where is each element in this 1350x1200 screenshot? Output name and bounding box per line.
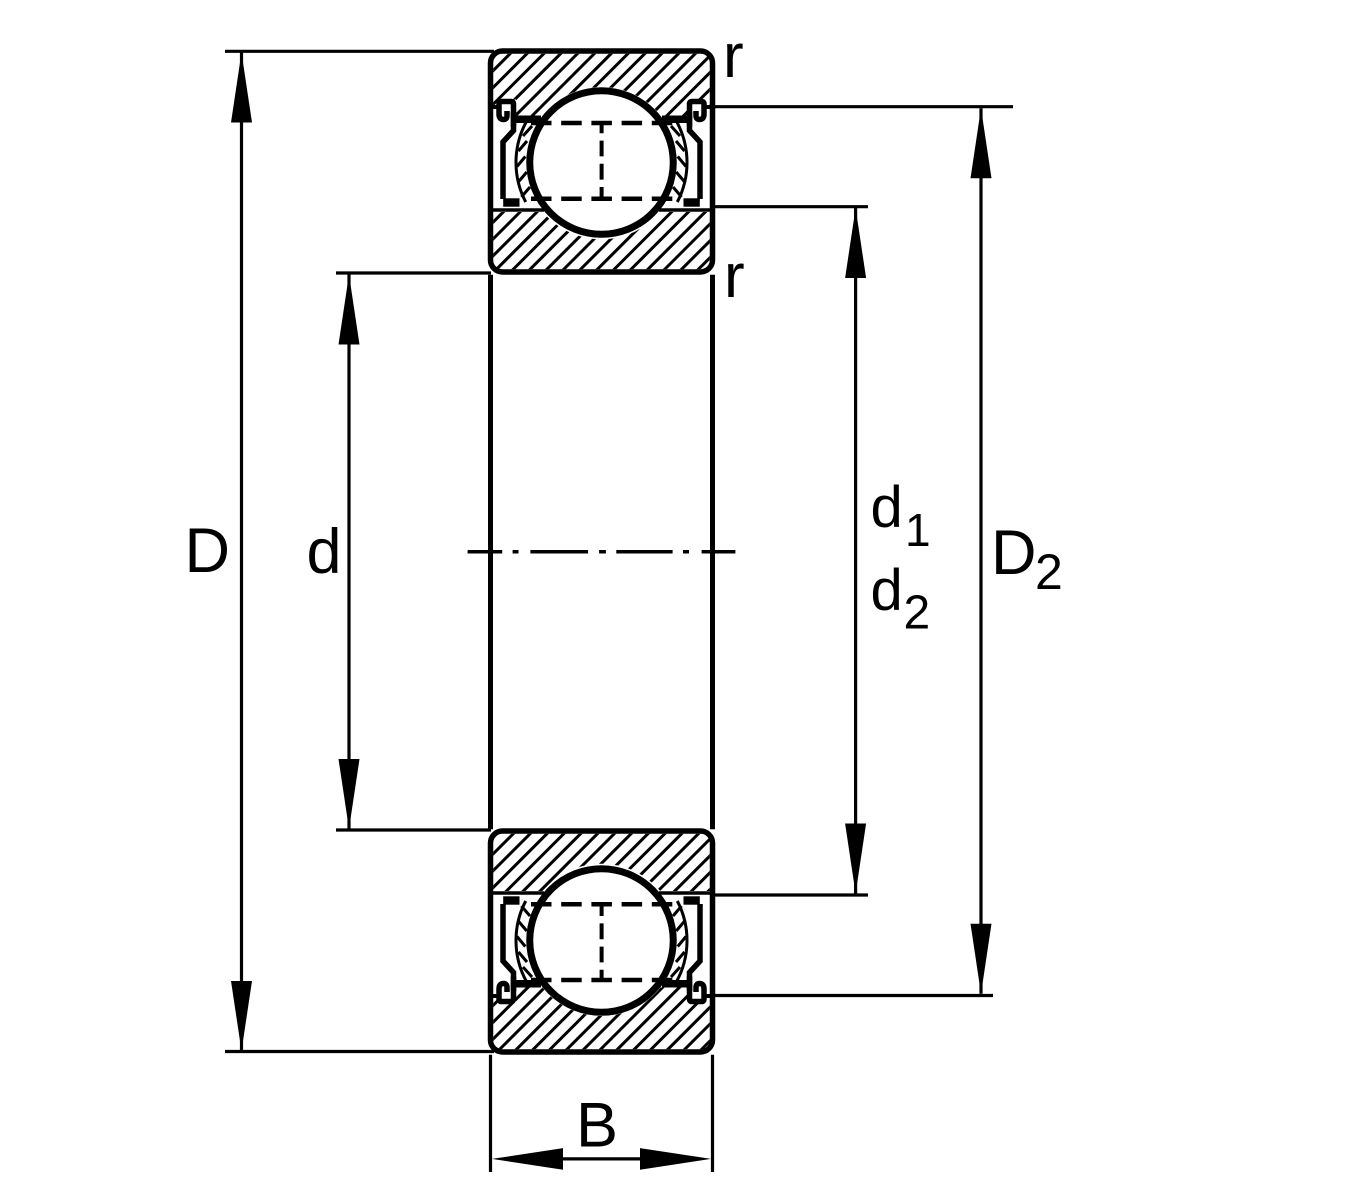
svg-text:r: r (723, 22, 744, 91)
svg-text:B: B (576, 1091, 618, 1161)
svg-text:d: d (871, 475, 903, 540)
svg-text:d: d (871, 558, 903, 623)
svg-text:d: d (307, 517, 342, 587)
svg-text:D: D (185, 516, 231, 586)
svg-text:2: 2 (904, 587, 931, 640)
svg-text:r: r (724, 242, 745, 311)
svg-text:2: 2 (1035, 544, 1063, 600)
svg-text:D: D (991, 518, 1037, 588)
svg-text:1: 1 (905, 504, 931, 556)
